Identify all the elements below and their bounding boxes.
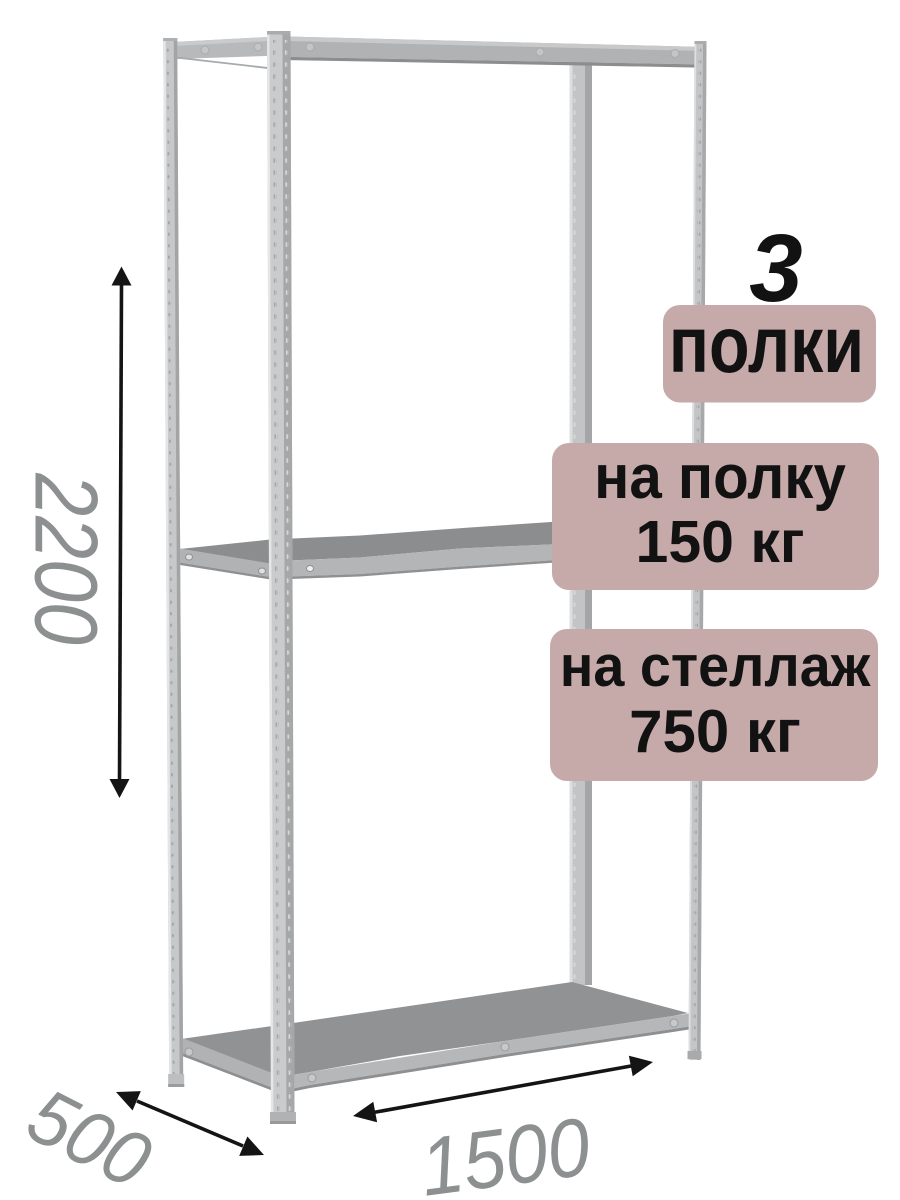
svg-text:на стеллаж: на стеллаж bbox=[560, 635, 871, 699]
svg-text:на полку: на полку bbox=[594, 442, 846, 511]
svg-text:150 кг: 150 кг bbox=[636, 509, 805, 575]
svg-text:полки: полки bbox=[669, 299, 864, 389]
svg-text:750 кг: 750 кг bbox=[629, 698, 801, 765]
svg-text:2200: 2200 bbox=[16, 472, 115, 644]
